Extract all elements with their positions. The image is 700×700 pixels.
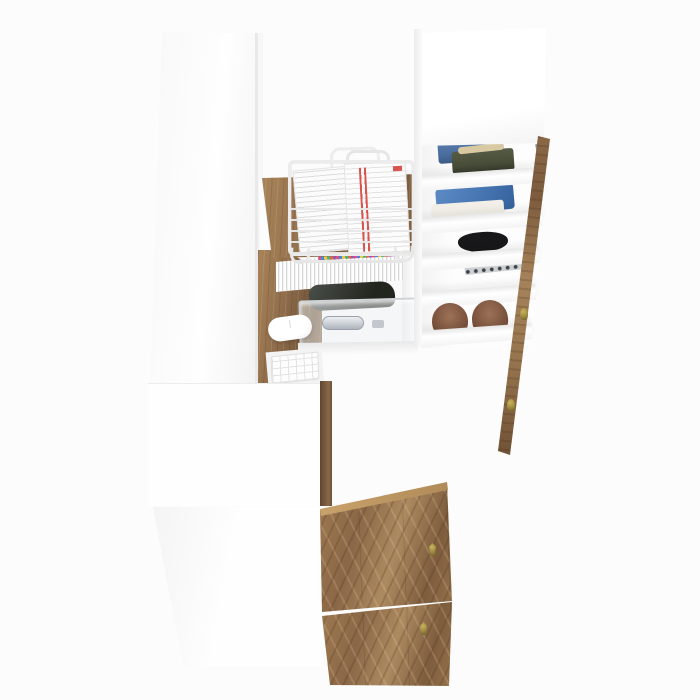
shelf-unit-side-edge	[414, 29, 422, 347]
oak-door-lower	[321, 600, 454, 688]
product-image-wardrobe-desk-top-view	[0, 0, 700, 700]
cabinet-mid-panel	[148, 383, 323, 506]
cabinet-bottom-panel	[150, 504, 324, 669]
basket-base-bar	[295, 260, 403, 263]
panel-edge-strip	[258, 33, 263, 179]
door-knob	[507, 399, 515, 411]
desk-side-edge	[320, 381, 332, 506]
shelf-unit-top-panel	[421, 28, 548, 147]
door-knob	[520, 308, 528, 320]
drawer-latch	[372, 320, 384, 328]
keyboard	[271, 351, 320, 384]
drawer-handle	[322, 316, 364, 330]
wardrobe-left-panel	[149, 30, 263, 385]
